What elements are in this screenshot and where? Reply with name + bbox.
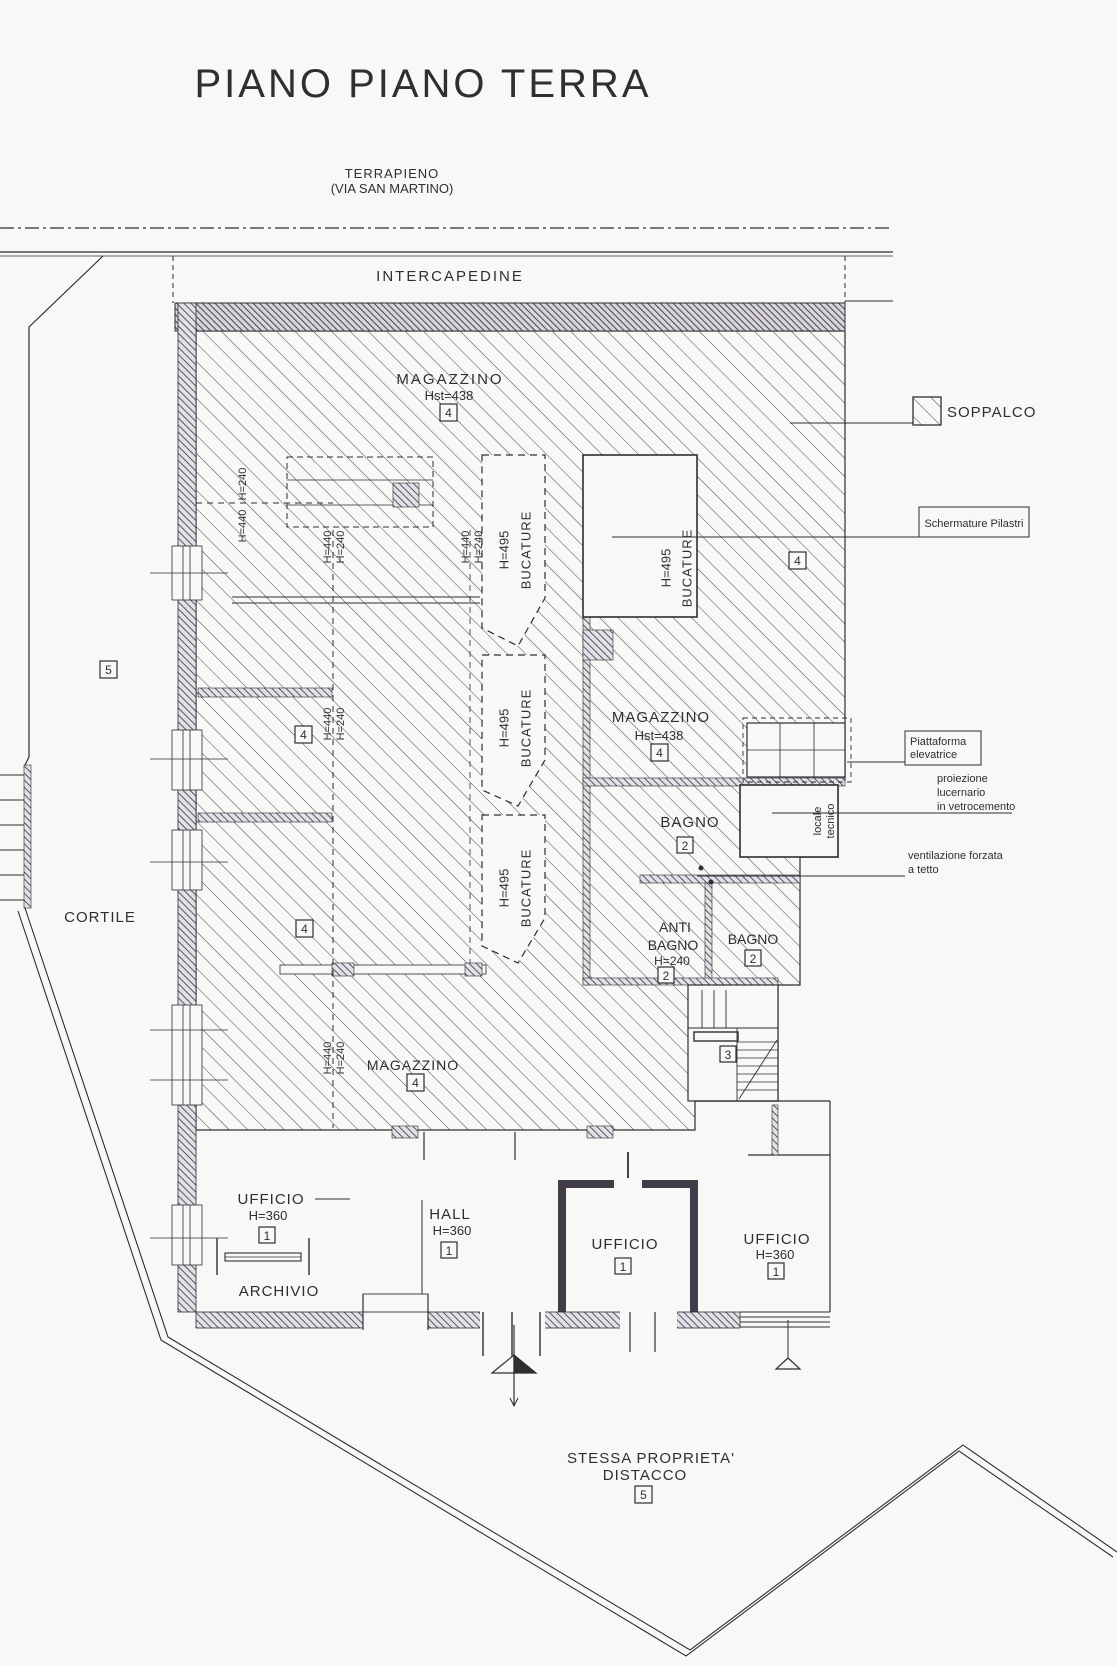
svg-text:UFFICIO: UFFICIO — [592, 1236, 659, 1253]
svg-text:1: 1 — [264, 1229, 271, 1243]
svg-text:5: 5 — [105, 663, 112, 677]
svg-text:tecnico: tecnico — [825, 804, 837, 839]
svg-text:H=495: H=495 — [497, 869, 512, 908]
svg-text:3: 3 — [725, 1048, 732, 1062]
svg-text:a tetto: a tetto — [908, 864, 939, 876]
page-title: PIANO PIANO TERRA — [194, 62, 651, 106]
svg-text:Schermature Pilastri: Schermature Pilastri — [924, 518, 1023, 530]
platform-lift — [743, 718, 851, 782]
svg-text:BAGNO: BAGNO — [648, 937, 699, 953]
soppalco-ref-left-2: 4 — [296, 920, 313, 937]
intercapedine-label: INTERCAPEDINE — [376, 268, 524, 285]
floor-plan-drawing: PIANO PIANO TERRA TERRAPIENO (VIA SAN MA… — [0, 0, 1117, 1666]
svg-text:H=440: H=440 — [322, 531, 334, 564]
svg-text:HALL: HALL — [429, 1206, 471, 1223]
soppalco-ref-left-1: 4 — [295, 726, 312, 743]
svg-text:H=440: H=440 — [460, 531, 472, 564]
room-ufficio-right: UFFICIO H=360 1 — [744, 1231, 811, 1279]
svg-text:BUCATURE: BUCATURE — [519, 849, 534, 928]
svg-text:BUCATURE: BUCATURE — [519, 511, 534, 590]
street-boundary — [0, 228, 893, 303]
svg-text:lucernario: lucernario — [937, 787, 985, 799]
svg-text:SOPPALCO: SOPPALCO — [947, 404, 1036, 421]
svg-text:H=495: H=495 — [497, 709, 512, 748]
svg-text:locale: locale — [812, 807, 824, 836]
svg-text:BUCATURE: BUCATURE — [519, 689, 534, 768]
piattaforma-callout: Piattaforma elevatrice — [847, 731, 981, 765]
room-archivio-label: ARCHIVIO — [239, 1283, 320, 1300]
cortile-ref-badge: 5 — [100, 661, 117, 678]
svg-text:proiezione: proiezione — [937, 773, 988, 785]
floor-plan-page: PIANO PIANO TERRA TERRAPIENO (VIA SAN MA… — [0, 0, 1117, 1666]
svg-text:MAGAZZINO: MAGAZZINO — [367, 1057, 459, 1073]
svg-text:1: 1 — [620, 1260, 627, 1274]
right-wing-walls — [695, 1101, 830, 1312]
distacco-label: STESSA PROPRIETA' DISTACCO 5 — [567, 1450, 735, 1503]
svg-text:Hst=438: Hst=438 — [635, 728, 684, 743]
svg-text:H=360: H=360 — [249, 1208, 288, 1223]
svg-text:4: 4 — [300, 728, 307, 742]
svg-text:Piattaforma: Piattaforma — [910, 736, 967, 748]
left-wall — [178, 303, 196, 1312]
room-ufficio-left: UFFICIO H=360 1 — [238, 1191, 305, 1243]
svg-text:MAGAZZINO: MAGAZZINO — [396, 371, 503, 388]
svg-text:elevatrice: elevatrice — [910, 749, 957, 761]
svg-text:4: 4 — [445, 406, 452, 420]
svg-text:BUCATURE: BUCATURE — [680, 529, 695, 608]
svg-text:1: 1 — [446, 1244, 453, 1258]
svg-text:H=440: H=440 — [322, 708, 334, 741]
svg-text:UFFICIO: UFFICIO — [238, 1191, 305, 1208]
svg-text:BAGNO: BAGNO — [660, 814, 719, 831]
svg-text:H=240: H=240 — [335, 1042, 347, 1075]
svg-text:2: 2 — [682, 839, 689, 853]
bucature-voids — [482, 455, 545, 963]
svg-text:BAGNO: BAGNO — [728, 931, 779, 947]
svg-text:H=360: H=360 — [433, 1223, 472, 1238]
svg-text:4: 4 — [301, 922, 308, 936]
stair-ref-badge: 3 — [720, 1046, 736, 1062]
svg-text:ventilazione forzata: ventilazione forzata — [908, 850, 1004, 862]
svg-text:1: 1 — [773, 1265, 780, 1279]
entrance-arrow — [492, 1325, 536, 1406]
svg-text:4: 4 — [412, 1076, 419, 1090]
svg-text:H=240: H=240 — [473, 531, 485, 564]
terrapieno-label-line2: (VIA SAN MARTINO) — [331, 181, 454, 196]
svg-text:Hst=438: Hst=438 — [425, 388, 474, 403]
svg-text:H=440: H=440 — [322, 1042, 334, 1075]
room-hall: HALL H=360 1 — [429, 1206, 471, 1258]
room-locale-tecnico: locale tecnico — [812, 804, 837, 839]
soppalco-ref-right: 4 — [789, 552, 806, 569]
svg-text:H=440: H=440 — [237, 510, 249, 543]
bottom-wall — [196, 1294, 830, 1356]
svg-text:H=495: H=495 — [497, 531, 512, 570]
svg-text:4: 4 — [656, 746, 663, 760]
svg-text:H=240: H=240 — [654, 954, 690, 968]
svg-text:MAGAZZINO: MAGAZZINO — [612, 709, 710, 726]
svg-text:2: 2 — [663, 969, 670, 983]
svg-text:STESSA PROPRIETA': STESSA PROPRIETA' — [567, 1450, 735, 1467]
svg-text:2: 2 — [750, 952, 757, 966]
svg-text:H=240: H=240 — [237, 468, 249, 501]
svg-text:5: 5 — [640, 1488, 647, 1502]
terrapieno-label-line1: TERRAPIENO — [345, 166, 440, 181]
svg-text:H=240: H=240 — [335, 531, 347, 564]
room-ufficio-center: UFFICIO 1 — [592, 1236, 659, 1274]
svg-text:H=495: H=495 — [659, 549, 674, 588]
svg-text:DISTACCO: DISTACCO — [603, 1467, 687, 1484]
svg-text:UFFICIO: UFFICIO — [744, 1231, 811, 1248]
svg-text:H=360: H=360 — [756, 1247, 795, 1262]
svg-text:in vetrocemento: in vetrocemento — [937, 801, 1015, 813]
svg-text:4: 4 — [794, 554, 801, 568]
staircase — [688, 985, 778, 1101]
soppalco-legend-swatch — [913, 397, 941, 425]
svg-text:ANTI: ANTI — [659, 919, 691, 935]
top-wall — [175, 303, 845, 331]
cortile-label: CORTILE — [64, 909, 136, 926]
svg-text:H=240: H=240 — [335, 708, 347, 741]
